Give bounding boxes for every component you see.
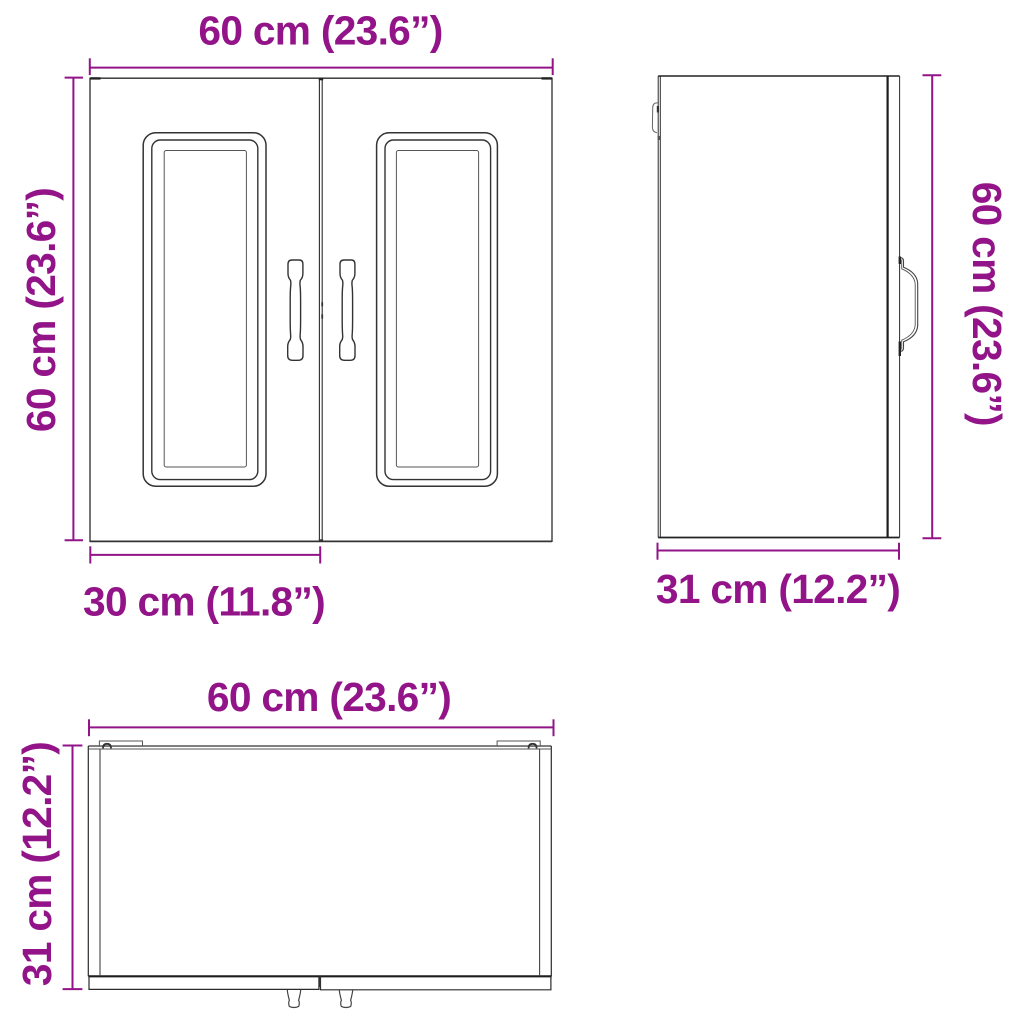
svg-text:60 cm (23.6”): 60 cm (23.6”) — [964, 182, 1010, 426]
svg-text:60 cm (23.6”): 60 cm (23.6”) — [198, 8, 442, 54]
svg-text:31 cm (12.2”): 31 cm (12.2”) — [14, 742, 60, 986]
svg-text:31 cm (12.2”): 31 cm (12.2”) — [656, 566, 900, 612]
svg-text:60 cm (23.6”): 60 cm (23.6”) — [18, 188, 64, 432]
svg-text:60 cm (23.6”): 60 cm (23.6”) — [207, 674, 451, 720]
svg-text:30 cm (11.8”): 30 cm (11.8”) — [83, 579, 325, 625]
